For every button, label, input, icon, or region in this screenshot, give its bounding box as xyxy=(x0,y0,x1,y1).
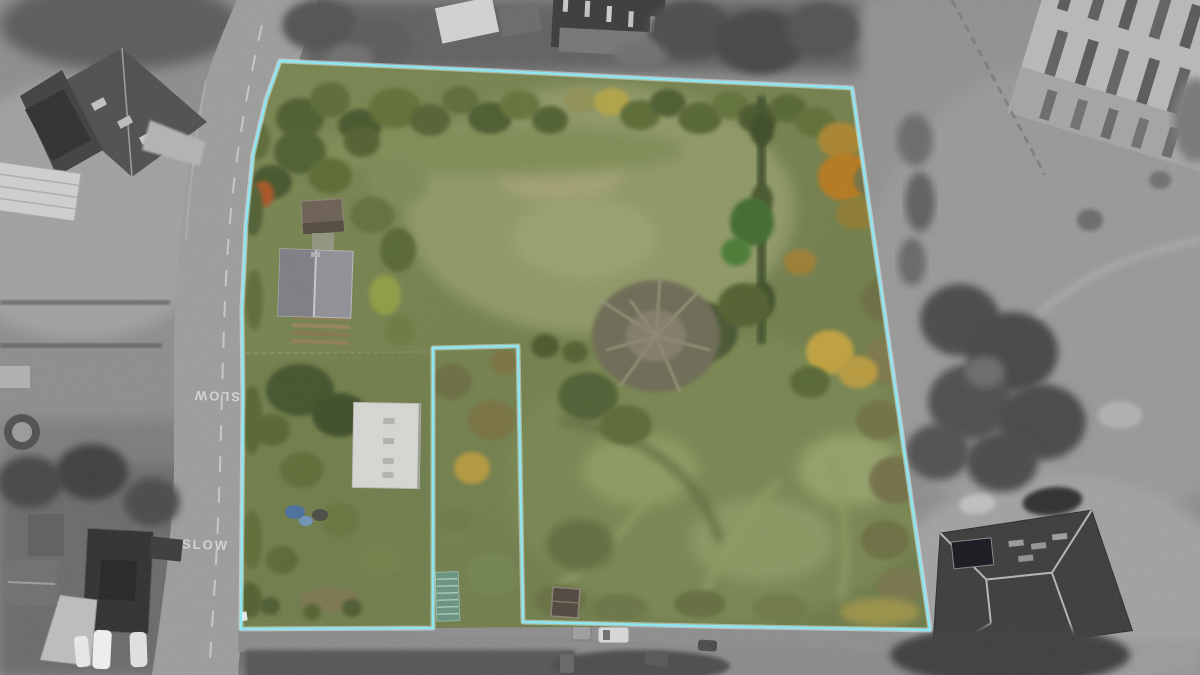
aerial-photo-canvas: SLOW SLOW xyxy=(0,0,1200,675)
photo-grain-overlay xyxy=(0,0,1200,675)
aerial-photo: SLOW SLOW xyxy=(0,0,1200,675)
